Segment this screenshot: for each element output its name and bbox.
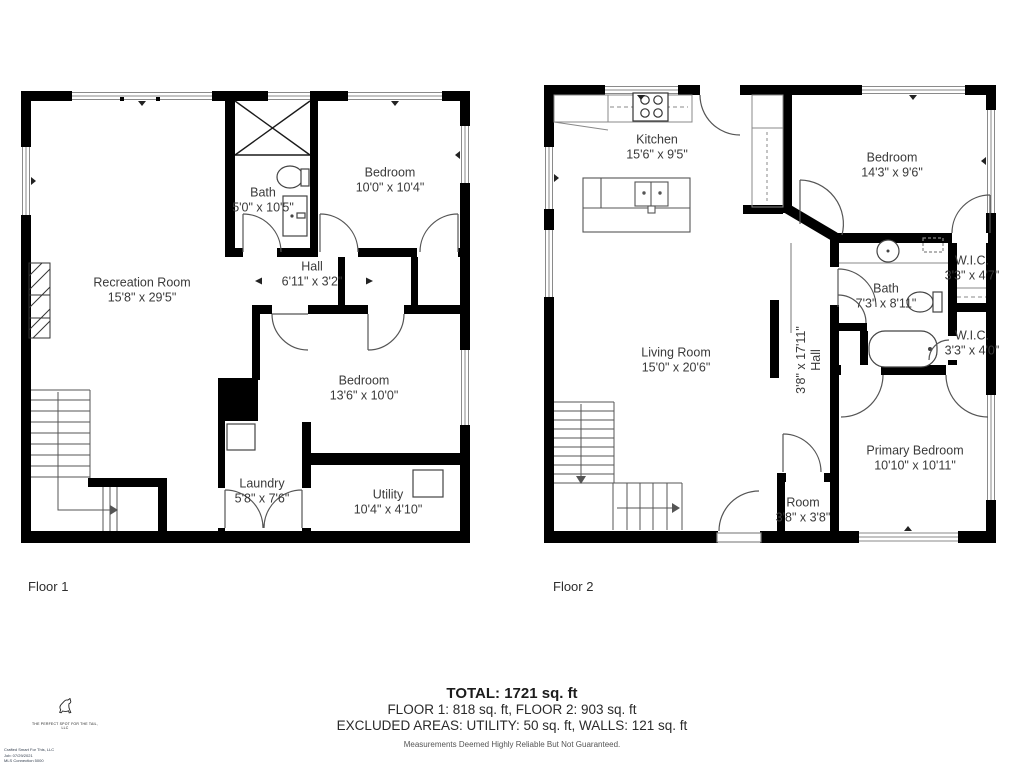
area-summary: TOTAL: 1721 sq. ft FLOOR 1: 818 sq. ft, … xyxy=(0,686,1024,750)
floor1-walls xyxy=(21,91,470,543)
dog-icon xyxy=(56,698,74,716)
logo-tagline: THE PERFECT SPOT FOR THE TAIL, LLC xyxy=(30,722,100,730)
floor2-title: Floor 2 xyxy=(553,579,593,594)
total-area-text: TOTAL: 1721 sq. ft xyxy=(0,686,1024,702)
room-label-wic-lower: W.I.C. 3'3" x 4'0" xyxy=(945,329,1000,358)
room-label-primary: Primary Bedroom 10'10" x 10'11" xyxy=(866,444,963,473)
room-label-utility: Utility 10'4" x 4'10" xyxy=(354,488,423,517)
floor2-stove-icon xyxy=(633,93,668,121)
room-label-bedroom-f2: Bedroom 14'3" x 9'6" xyxy=(861,151,923,180)
excluded-areas-text: EXCLUDED AREAS: UTILITY: 50 sq. ft, WALL… xyxy=(0,718,1024,734)
fine-print: Crafted Smart For This, LLC Job: 07/29/2… xyxy=(4,747,54,764)
room-label-hall-f2-dims: 3'8" x 17'11" xyxy=(794,326,808,394)
disclaimer-text: Measurements Deemed Highly Reliable But … xyxy=(0,740,1024,750)
floor-areas-text: FLOOR 1: 818 sq. ft, FLOOR 2: 903 sq. ft xyxy=(0,702,1024,718)
company-logo: THE PERFECT SPOT FOR THE TAIL, LLC xyxy=(30,698,100,730)
room-label-laundry: Laundry 5'8" x 7'6" xyxy=(235,477,290,506)
room-label-room: Room 3'8" x 3'8" xyxy=(776,496,831,525)
room-label-hall-f2-name: Hall xyxy=(809,349,823,371)
floor1-windows xyxy=(21,91,470,425)
room-label-living: Living Room 15'0" x 20'6" xyxy=(641,346,710,375)
floor1-closet-x-icon xyxy=(235,101,310,155)
floor2-doors xyxy=(700,95,990,542)
room-label-bath-f1: Bath 5'0" x 10'5" xyxy=(232,186,294,215)
room-label-kitchen: Kitchen 15'6" x 9'5" xyxy=(626,133,688,162)
room-label-bath-f2: Bath 7'3" x 8'11" xyxy=(856,282,917,311)
floor1-title: Floor 1 xyxy=(28,579,68,594)
room-label-wic-upper: W.I.C. 3'3" x 4'7" xyxy=(945,254,1000,283)
floor2-island-sink-icon xyxy=(583,178,690,232)
fine-print-line1: Crafted Smart For This, LLC xyxy=(4,747,54,753)
floor2-stairs-icon xyxy=(554,402,682,530)
floor2-door-gaps xyxy=(700,85,988,543)
room-label-hall-f1: Hall 6'11" x 3'2" xyxy=(282,260,343,289)
floorplan-page: Recreation Room 15'8" x 29'5" Bath 5'0" … xyxy=(0,0,1024,768)
floor1-stairs-icon xyxy=(31,390,118,531)
floorplan-canvas xyxy=(0,0,1024,768)
room-label-bedroom-mid-f1: Bedroom 13'6" x 10'0" xyxy=(330,374,399,403)
floor2-diagonal-wall xyxy=(786,208,835,237)
room-label-bedroom-top-f1: Bedroom 10'0" x 10'4" xyxy=(356,166,425,195)
room-label-recreation: Recreation Room 15'8" x 29'5" xyxy=(93,276,190,305)
floor1-fireplace-icon xyxy=(29,263,50,338)
fine-print-line3: MLS Connection 5000 xyxy=(4,758,54,764)
